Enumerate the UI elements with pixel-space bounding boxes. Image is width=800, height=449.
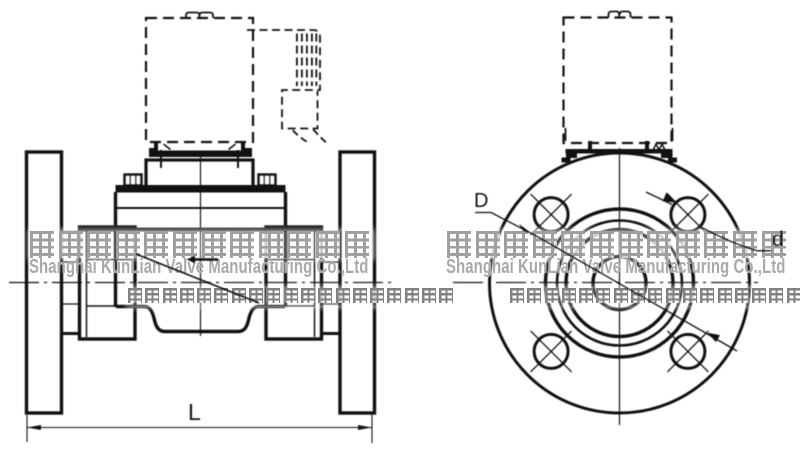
- svg-text:D: D: [474, 190, 488, 212]
- svg-text:d: d: [772, 228, 784, 251]
